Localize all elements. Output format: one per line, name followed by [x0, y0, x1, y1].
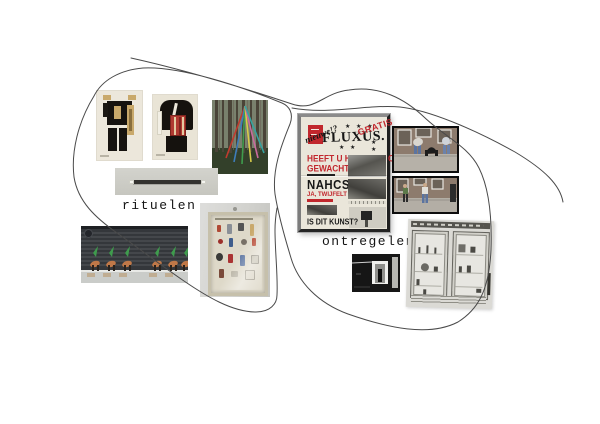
- bw-interior-art: [352, 254, 400, 292]
- star-icons: ★ ★: [339, 144, 357, 151]
- still-1-art: [394, 128, 457, 171]
- white-strip: [157, 111, 162, 135]
- glass-reflection: [208, 212, 262, 290]
- figure-silhouette: [378, 269, 382, 282]
- dancers-performance-photo[interactable]: [81, 226, 188, 283]
- street-video-still-1[interactable]: [392, 126, 459, 173]
- collage-tan-tab: [128, 95, 136, 100]
- cluster-label-rituelen[interactable]: rituelen: [122, 198, 196, 213]
- tiny-caption: [100, 155, 109, 157]
- fluxus-poster[interactable]: nieuwe!? FLUXUS. ★ ★ ★ ★ ★ ★ ★ GRATIS HE…: [298, 114, 390, 232]
- rod-cap: [201, 180, 206, 184]
- scan-vitrine-right: [451, 231, 490, 300]
- display-case-photo[interactable]: [200, 203, 270, 297]
- red-text-bar: [307, 199, 333, 202]
- star-icons: ★ ★: [371, 139, 387, 153]
- dancers-art: [81, 226, 188, 283]
- hook-icon: [233, 207, 237, 211]
- scan-caption-paragraph: [411, 295, 486, 305]
- poster-news-photo: [307, 205, 337, 215]
- gold-ladder-strip: [114, 103, 121, 119]
- poster-red-line: JA, TWIJFELT ?: [307, 192, 352, 198]
- scan-header-band: [411, 221, 490, 229]
- tiny-caption: [156, 154, 165, 156]
- cluster-label-ontregelen[interactable]: ontregelen: [322, 234, 415, 249]
- red-striped-bag: [170, 115, 186, 136]
- poster-news-photo: [348, 179, 386, 199]
- black-trouser-leg: [119, 128, 127, 151]
- forest-art: [212, 100, 268, 174]
- garment-collage-1-image[interactable]: [96, 90, 143, 161]
- vitrine-scan-page[interactable]: [406, 219, 494, 309]
- paper-fold-line: [301, 175, 387, 176]
- moodboard-page: rituelen: [0, 0, 600, 424]
- collage-tan-tab: [103, 95, 111, 100]
- garment-collage-2-image[interactable]: [152, 94, 198, 160]
- play-badge-icon[interactable]: [84, 229, 93, 238]
- jacket-sleeve: [103, 103, 108, 117]
- scan-edge-mark: [487, 273, 491, 295]
- bw-interior-photo[interactable]: [352, 254, 400, 292]
- poster-bottom-question: IS DIT KUNST?: [307, 217, 358, 226]
- gold-strip-shade: [129, 109, 132, 131]
- poster-news-photo: [348, 155, 386, 177]
- poster-photo-caption: [348, 201, 386, 204]
- black-shorts-shape: [166, 136, 187, 152]
- street-video-still-2[interactable]: [392, 176, 459, 214]
- concrete-rod-image[interactable]: [115, 168, 218, 195]
- rod-shadow: [133, 184, 201, 185]
- black-trouser-leg: [108, 128, 117, 151]
- still-2-art: [394, 178, 457, 212]
- scan-vitrine-left: [410, 230, 449, 299]
- forest-maypole-photo[interactable]: [212, 100, 268, 174]
